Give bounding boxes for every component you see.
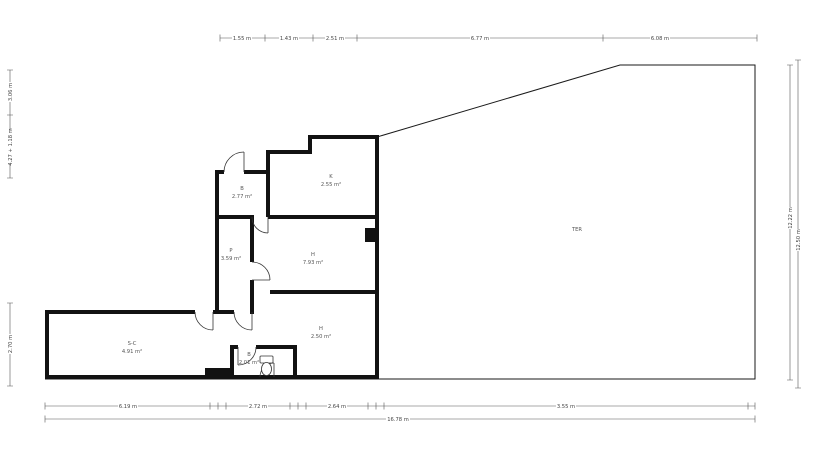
door-arc-room-k bbox=[252, 217, 268, 233]
doors bbox=[195, 152, 274, 377]
toilet-fixture bbox=[260, 356, 273, 376]
room-b-top-label: B bbox=[240, 186, 244, 192]
room-ter-label: TER bbox=[571, 227, 582, 233]
room-h-mid-area: 7.93 m² bbox=[303, 260, 323, 266]
pillar-bottom bbox=[205, 368, 232, 379]
room-k-label: K bbox=[329, 174, 333, 180]
door-arc-sc bbox=[195, 312, 213, 330]
room-bath-label: B bbox=[247, 352, 251, 358]
room-h-bottom-label: H bbox=[319, 326, 323, 332]
door-arc-hall-h-mid bbox=[252, 262, 270, 280]
room-k-area: 2.55 m² bbox=[321, 182, 341, 188]
room-sc-label: S-C bbox=[128, 341, 137, 347]
terrace-outline bbox=[45, 65, 755, 379]
dim-top-labels: 1.55 m 1.43 m 2.51 m 6.77 m 6.08 m bbox=[232, 35, 670, 42]
dim-right-1: 12.22 m bbox=[788, 207, 794, 229]
door-arc-room-b-top bbox=[224, 152, 244, 172]
dim-bottom-2: 2.72 m bbox=[249, 404, 267, 410]
dim-bottom-4: 3.55 m bbox=[557, 404, 575, 410]
dim-top-4: 6.77 m bbox=[471, 36, 489, 42]
dim-bottom-total: 16.78 m bbox=[387, 417, 409, 423]
floor-plan-svg: B 2.77 m² K 2.55 m² P 3.59 m² H 7.93 m² … bbox=[0, 0, 816, 459]
dim-right-labels: 12.22 m 12.50 m bbox=[787, 207, 802, 251]
dim-bottom-3: 2.64 m bbox=[328, 404, 346, 410]
dim-bottom-1: 6.19 m bbox=[119, 404, 137, 410]
walls bbox=[45, 135, 378, 379]
dim-right-2: 12.50 m bbox=[796, 229, 802, 251]
dim-top-3: 2.51 m bbox=[326, 36, 344, 42]
dim-top-5: 6.08 m bbox=[651, 36, 669, 42]
room-bath-area: 2.01 m² bbox=[239, 360, 259, 366]
dim-top-2: 1.43 m bbox=[280, 36, 298, 42]
dim-left-labels: 3.06 m 4.27 + 1.18 m 2.70 m bbox=[7, 82, 14, 354]
dim-left-2: 4.27 + 1.18 m bbox=[8, 128, 14, 165]
toilet-bowl bbox=[262, 363, 272, 376]
floor-plan-page: B 2.77 m² K 2.55 m² P 3.59 m² H 7.93 m² … bbox=[0, 0, 816, 459]
room-labels: B 2.77 m² K 2.55 m² P 3.59 m² H 7.93 m² … bbox=[122, 174, 583, 366]
room-sc-area: 4.91 m² bbox=[122, 349, 142, 355]
room-h-mid-label: H bbox=[311, 252, 315, 258]
room-p-label: P bbox=[229, 248, 232, 254]
dim-left-3: 2.70 m bbox=[8, 335, 14, 353]
room-b-top-area: 2.77 m² bbox=[232, 194, 252, 200]
toilet-tank bbox=[260, 356, 273, 363]
dim-left-1: 3.06 m bbox=[8, 83, 14, 101]
dim-top-1: 1.55 m bbox=[233, 36, 251, 42]
room-p-area: 3.59 m² bbox=[221, 256, 241, 262]
room-h-bottom-area: 2.50 m² bbox=[311, 334, 331, 340]
door-arc-hall-h-bottom bbox=[234, 312, 252, 330]
pillar-right-wall bbox=[365, 228, 377, 242]
